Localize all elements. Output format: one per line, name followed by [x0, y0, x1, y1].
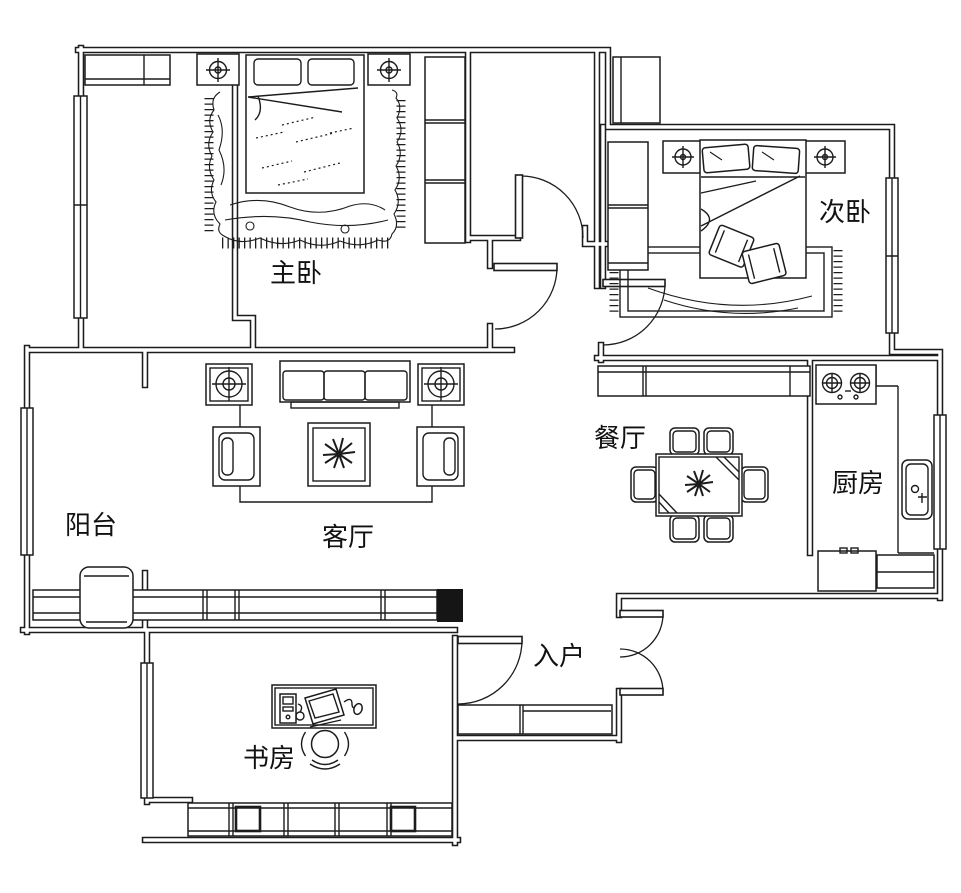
room-label-living-room: 客厅	[322, 522, 374, 552]
sofa-front-rail	[291, 402, 399, 408]
floor-plan-canvas: 主卧	[0, 0, 961, 893]
floor-plan-drawing: 主卧	[0, 0, 961, 893]
entry: 入户	[458, 641, 612, 734]
room-label-balcony: 阳台	[65, 510, 117, 540]
double-bed	[246, 55, 364, 193]
door-leaf	[620, 611, 663, 618]
armchair	[213, 427, 260, 486]
rug-detail	[341, 225, 349, 233]
dining-room: 餐厅	[594, 366, 810, 542]
door-swing-arc	[603, 283, 665, 345]
entry-double-door	[620, 611, 663, 696]
dining-chair	[670, 515, 699, 542]
armchair	[417, 427, 464, 486]
dining-table	[656, 454, 742, 516]
door-leaf	[494, 264, 557, 271]
room-label-entry: 入户	[533, 641, 585, 671]
door-leaf	[458, 637, 522, 644]
kitchen: 厨房	[816, 365, 934, 591]
lower-counter	[877, 555, 934, 588]
dining-chair	[704, 428, 733, 455]
kitchen-sink	[902, 460, 932, 519]
door-swing-arcs	[620, 614, 663, 692]
structural-column	[437, 589, 463, 622]
door-leaf	[516, 175, 523, 238]
door-swing-arc	[495, 267, 557, 329]
room-label-master-bedroom: 主卧	[270, 258, 322, 288]
balcony-left-window	[21, 408, 33, 555]
door-swing-arc	[521, 176, 583, 238]
plant-center	[336, 451, 342, 457]
pillow	[702, 144, 750, 173]
computer-tower	[280, 694, 296, 723]
side-table-lamp	[418, 364, 464, 405]
room-label-dining-room: 餐厅	[594, 423, 646, 453]
wardrobe-right-column	[425, 57, 465, 243]
coffee-table	[308, 423, 370, 486]
dining-chair	[631, 467, 658, 502]
rug-texture	[648, 288, 812, 313]
wardrobe	[608, 142, 648, 270]
dining-chair	[670, 428, 699, 455]
room-label-second-bedroom: 次卧	[819, 197, 871, 227]
door-swing-arc	[458, 640, 522, 704]
counter-edge	[876, 365, 934, 553]
dining-chair	[704, 515, 733, 542]
side-table-lamp	[206, 364, 252, 405]
refrigerator	[818, 548, 876, 591]
dining-chair	[741, 467, 768, 502]
sofa	[280, 361, 410, 408]
living-room: 客厅	[206, 361, 464, 552]
master-left-window	[74, 96, 87, 318]
study-left-window	[141, 663, 153, 798]
pillow	[752, 145, 800, 173]
plant-center	[696, 481, 701, 486]
wardrobe-top-left	[85, 55, 170, 85]
study: 书房	[243, 685, 376, 773]
gas-stove	[816, 365, 876, 404]
master-closet-door	[516, 175, 584, 238]
rug-detail	[246, 222, 254, 230]
sideboard-cabinet	[598, 366, 810, 396]
room-label-study: 书房	[243, 743, 295, 773]
utility-shaft	[613, 57, 660, 123]
study-south-window-band	[188, 803, 452, 836]
door-leaf	[620, 689, 663, 696]
second-bedroom-window	[886, 178, 898, 333]
shoe-cabinet	[458, 705, 612, 734]
kitchen-window	[934, 415, 946, 549]
desk-chair	[302, 731, 349, 770]
second-bedroom: 次卧	[608, 140, 871, 317]
hall-passage-door	[494, 264, 557, 330]
room-label-kitchen: 厨房	[832, 468, 884, 498]
study-door	[458, 637, 522, 705]
washing-machine	[80, 567, 133, 628]
master-bedroom: 主卧	[85, 54, 660, 288]
